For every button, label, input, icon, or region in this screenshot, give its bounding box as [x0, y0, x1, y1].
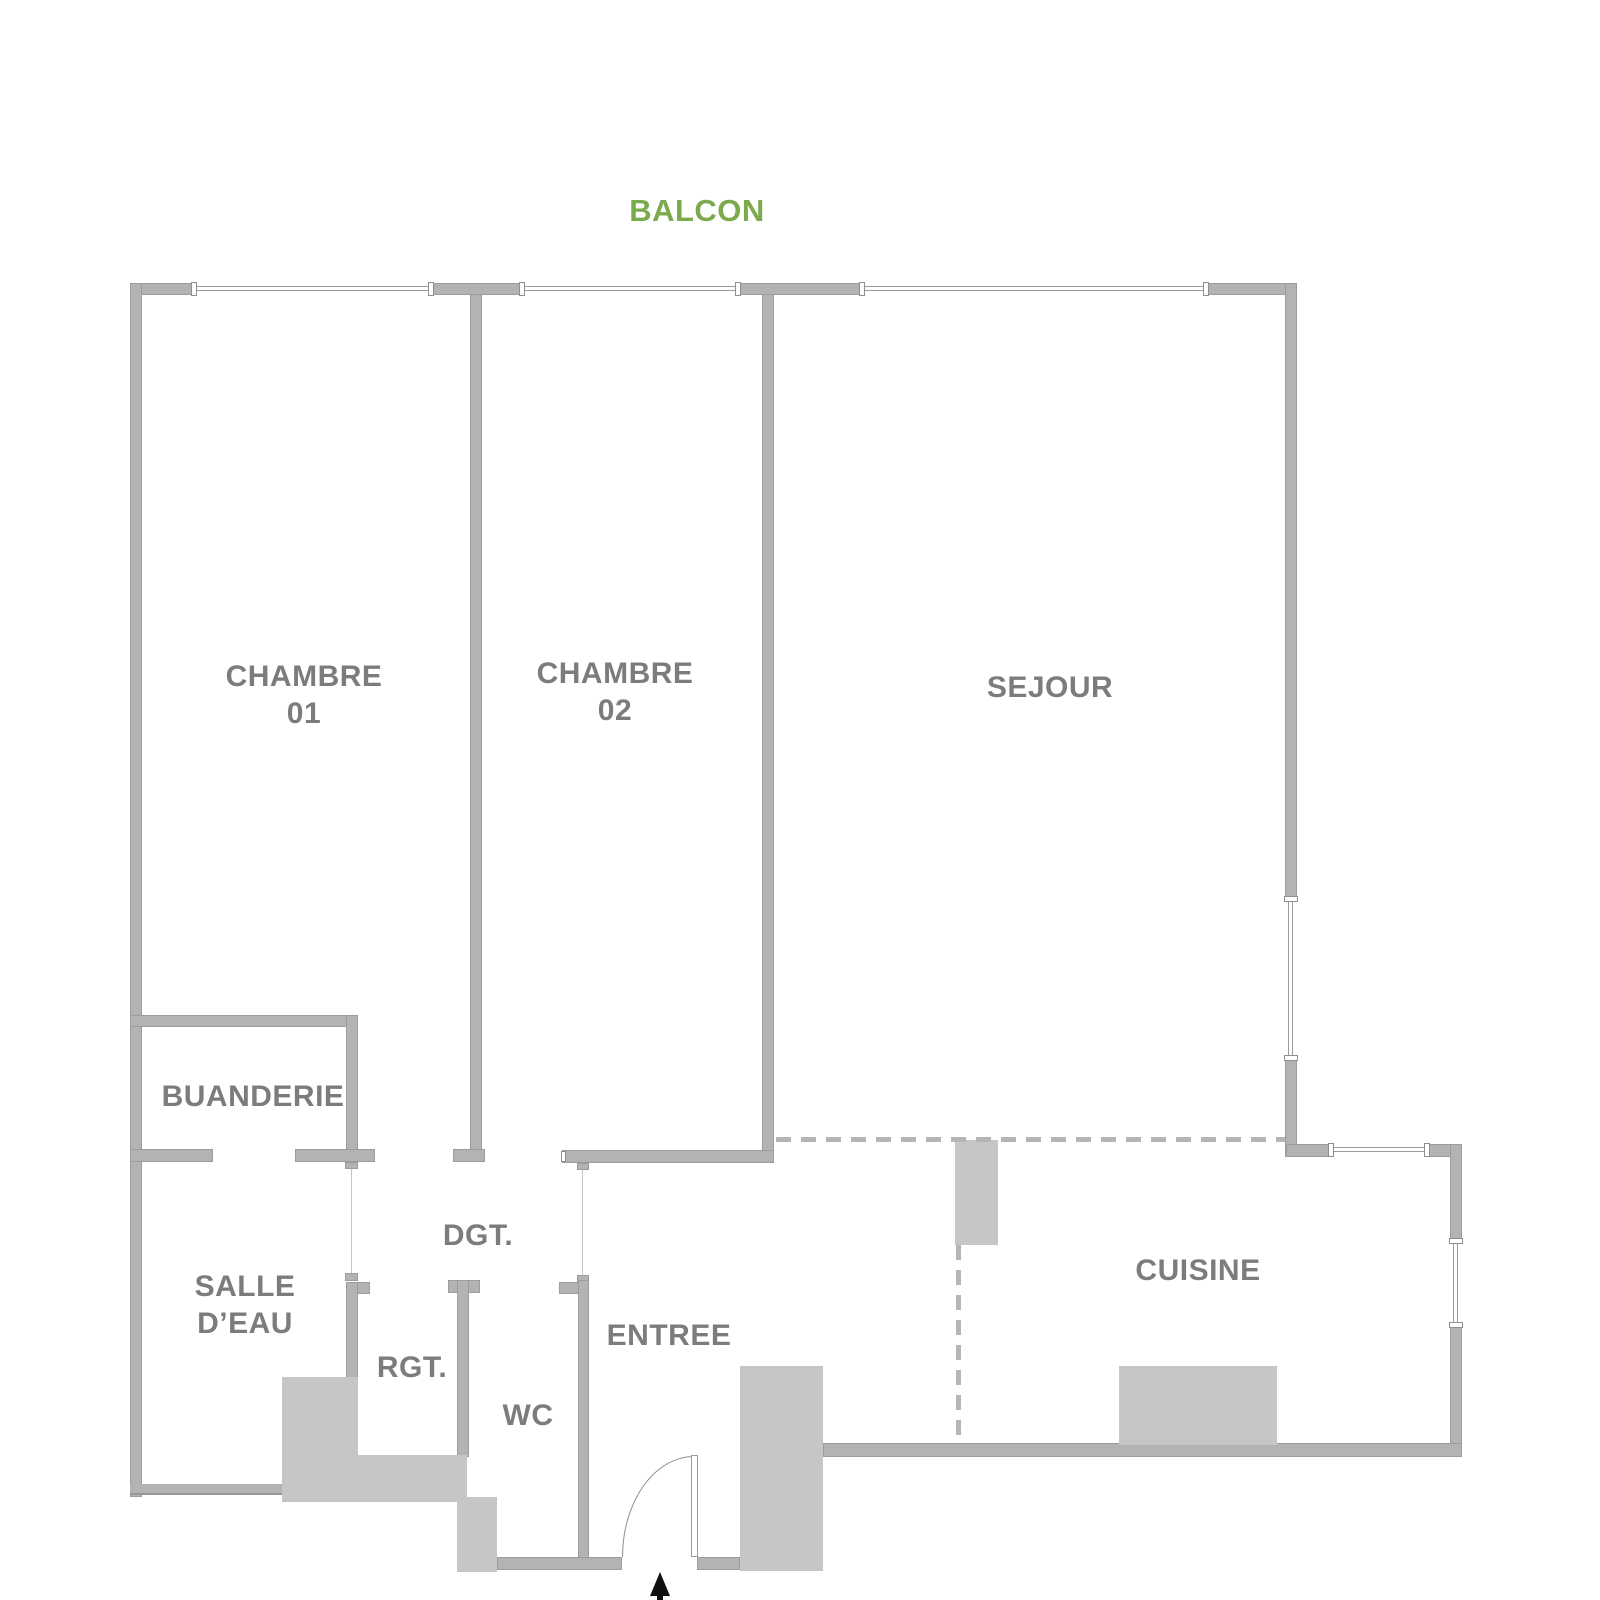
block-salle-deau: [282, 1377, 358, 1457]
entree-text: ENTREE: [607, 1319, 732, 1352]
wall-kitchen-top-1: [1286, 1144, 1333, 1157]
window-jamb: [519, 282, 525, 296]
wall-kitchen-bottom: [823, 1443, 1462, 1457]
wall-rgt-wc-divider: [457, 1280, 469, 1457]
entrance-arrow-icon: [650, 1572, 670, 1596]
sejour-text: SEJOUR: [987, 671, 1113, 704]
entrance-door-arc: [622, 1456, 694, 1557]
door-jamb-dgt-left-top: [345, 1162, 358, 1169]
wall-entree-left: [578, 1280, 589, 1568]
rgt-text: RGT.: [377, 1351, 447, 1384]
wc-text: WC: [503, 1399, 554, 1432]
wall-right-lower: [1285, 1057, 1297, 1157]
wall-rgt-left: [346, 1282, 358, 1378]
salle-deau-line2: D’EAU: [195, 1305, 296, 1342]
chambre01-line1: CHAMBRE: [226, 658, 383, 695]
wall-right-upper: [1285, 283, 1297, 902]
door-opening-entree: [582, 1170, 583, 1275]
window-jamb: [1284, 1055, 1298, 1061]
wall-kitchen-right-2: [1450, 1325, 1462, 1455]
window-jamb: [428, 282, 434, 296]
chambre02-line2: 02: [537, 692, 694, 729]
window-jamb: [1203, 282, 1209, 296]
balcon-text: BALCON: [629, 193, 765, 228]
block-kitchen-counter: [1119, 1366, 1277, 1445]
wall-salle-deau-bottom: [130, 1484, 283, 1495]
wall-left: [130, 283, 142, 1497]
wall-bottom-wc: [497, 1557, 622, 1570]
wall-sejour-divider: [762, 294, 774, 1151]
wall-chambre02-bottom: [562, 1150, 774, 1163]
label-buanderie: BUANDERIE: [162, 1078, 345, 1115]
cuisine-text: CUISINE: [1135, 1254, 1260, 1287]
entrance-arrow-stem: [657, 1594, 663, 1600]
window-jamb: [859, 282, 865, 296]
wall-top-right: [1203, 283, 1297, 295]
window-top-2: [525, 286, 735, 291]
floor-plan: BALCON CHAMBRE 01 CHAMBRE 02 SEJOUR BUAN…: [0, 0, 1600, 1600]
buanderie-text: BUANDERIE: [162, 1080, 345, 1113]
door-jamb-entree-top: [577, 1163, 589, 1170]
wall-top-mid2: [735, 283, 865, 295]
window-top-3: [865, 286, 1203, 291]
entrance-door-leaf: [691, 1455, 698, 1557]
label-entree: ENTREE: [607, 1317, 732, 1354]
wall-kitchen-right-1: [1450, 1144, 1462, 1243]
wall-buanderie-bottom-left: [130, 1149, 213, 1162]
window-kitchen-top: [1333, 1147, 1427, 1152]
window-jamb: [1424, 1143, 1430, 1157]
block-entree-shaft: [740, 1366, 823, 1571]
label-chambre-01: CHAMBRE 01: [226, 658, 383, 732]
label-chambre-02: CHAMBRE 02: [537, 655, 694, 729]
wall-buanderie-bottom-right: [295, 1149, 375, 1162]
dgt-text: DGT.: [443, 1219, 513, 1252]
label-sejour: SEJOUR: [987, 669, 1113, 706]
door-jamb: [561, 1151, 566, 1162]
label-balcon: BALCON: [629, 192, 765, 229]
label-cuisine: CUISINE: [1135, 1252, 1260, 1289]
window-jamb: [735, 282, 741, 296]
wall-buanderie-right: [346, 1015, 358, 1151]
label-salle-deau: SALLE D’EAU: [195, 1268, 296, 1342]
wall-chambre-divider-foot: [453, 1149, 485, 1162]
block-sejour-column: [955, 1140, 998, 1245]
window-right: [1288, 902, 1293, 1057]
window-jamb: [1328, 1143, 1334, 1157]
wall-bottom-entree-right: [697, 1557, 740, 1570]
wall-chambre-divider: [470, 294, 482, 1150]
label-rgt: RGT.: [377, 1349, 447, 1386]
dashed-partition-horizontal: [776, 1137, 1285, 1142]
chambre01-line2: 01: [226, 695, 383, 732]
label-dgt: DGT.: [443, 1217, 513, 1254]
window-jamb: [1449, 1322, 1463, 1328]
wall-buanderie-top: [130, 1015, 358, 1027]
window-jamb: [1284, 896, 1298, 902]
block-wc-left: [457, 1497, 497, 1572]
block-salle-deau-wide: [282, 1455, 467, 1502]
chambre02-line1: CHAMBRE: [537, 655, 694, 692]
salle-deau-line1: SALLE: [195, 1268, 296, 1305]
door-jamb-dgt-left-bottom: [345, 1273, 358, 1281]
window-jamb: [1449, 1238, 1463, 1244]
door-opening-salle-deau: [351, 1169, 352, 1273]
window-kitchen-right: [1453, 1243, 1458, 1325]
window-jamb: [191, 282, 197, 296]
window-top-1: [197, 286, 428, 291]
dashed-partition-vertical: [956, 1245, 961, 1443]
label-wc: WC: [503, 1397, 554, 1434]
